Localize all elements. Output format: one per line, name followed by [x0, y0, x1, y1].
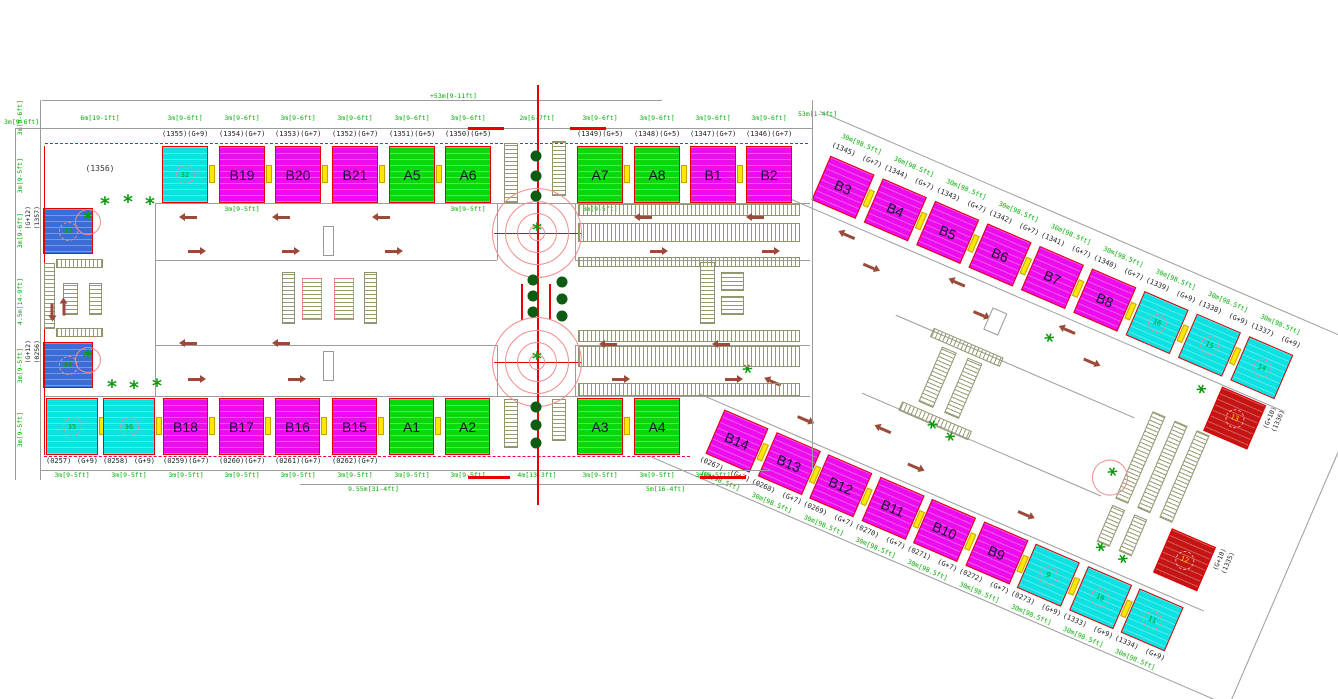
- block-label: B17: [229, 419, 254, 435]
- block-label: B21: [343, 167, 368, 183]
- block-label: A7: [591, 167, 608, 183]
- dim-label: 3m[9-5ft]: [16, 348, 24, 383]
- dim-label: 3m[9-5ft]: [394, 471, 429, 479]
- road-arrow-icon: [188, 250, 200, 253]
- floors-label: (G+7): [715, 130, 736, 138]
- floors-label: (G+12): [24, 206, 32, 229]
- plot-number: (0261): [275, 457, 300, 465]
- tree-icon: [531, 402, 542, 413]
- dim-label: 3m[9-5ft]: [582, 471, 617, 479]
- parking-hatch: [552, 141, 566, 196]
- plot-block-b7[interactable]: B7: [1021, 246, 1084, 309]
- parking-hatch: [334, 278, 354, 320]
- plot-label: (0262)(G+7): [332, 457, 377, 465]
- grid-line: [15, 128, 16, 480]
- road-arrow-icon: [378, 216, 390, 219]
- block-label: B19: [230, 167, 255, 183]
- road-arrow-icon: [1083, 358, 1095, 366]
- block-label: B2: [760, 167, 777, 183]
- road-arrow-icon: [752, 216, 764, 219]
- block-label: B20: [286, 167, 311, 183]
- unit-number: 10: [1088, 585, 1113, 610]
- parking-hatch: [89, 283, 102, 315]
- block-label: A1: [403, 419, 420, 435]
- tree-icon: *: [940, 430, 957, 451]
- dimension-bar: [570, 127, 606, 130]
- tree-icon: [528, 291, 539, 302]
- road-arrow-icon: [185, 216, 197, 219]
- tree-icon: *: [83, 348, 93, 367]
- floors-label: (G+7): [357, 457, 378, 465]
- unit-number: 16: [1145, 310, 1170, 335]
- plot-block-b4[interactable]: B4: [864, 178, 927, 241]
- plot-label: (1355)(G+9): [162, 130, 208, 138]
- unit-number: 12: [1172, 547, 1197, 572]
- parking-hatch: [578, 257, 800, 267]
- floors-label: (G+7): [188, 457, 209, 465]
- grid-line: [812, 100, 813, 470]
- plot-block-b3[interactable]: B3: [811, 156, 874, 219]
- parking-hatch: [552, 399, 566, 441]
- plot-number: (1350): [445, 130, 470, 138]
- tree-icon: *: [1091, 540, 1108, 561]
- road-arrow-icon: [953, 280, 965, 288]
- boundary-dashed: [45, 143, 808, 144]
- dim-label: 3m[9-5ft]: [450, 205, 485, 213]
- floors-label: (G+7): [244, 457, 265, 465]
- block-label: A5: [403, 167, 420, 183]
- parking-hatch: [721, 272, 744, 291]
- floors-label: (G+12): [24, 340, 32, 363]
- tree-icon: [557, 311, 568, 322]
- plot-block-a1[interactable]: A1: [389, 398, 434, 455]
- tree-icon: *: [532, 350, 542, 369]
- parking-hatch: [302, 278, 322, 320]
- tree-icon: *: [107, 378, 117, 397]
- yellow-connector: [435, 417, 441, 435]
- road-arrow-icon: [385, 250, 397, 253]
- plot-block-a4[interactable]: A4: [634, 398, 680, 455]
- road-arrow-icon: [612, 378, 624, 381]
- planter-box: [323, 351, 334, 381]
- grid-line: [40, 470, 770, 471]
- yellow-connector: [156, 417, 162, 435]
- road-arrow-icon: [278, 216, 290, 219]
- plot-block-b16[interactable]: B16: [275, 398, 320, 455]
- unit-number: 14: [1249, 355, 1274, 380]
- dimension-bar: [468, 127, 504, 130]
- block-label: A8: [648, 167, 665, 183]
- dim-label: 3m[9-6ft]: [337, 114, 372, 122]
- road-arrow-icon: [879, 427, 891, 435]
- floors-label: (G+7): [244, 130, 265, 138]
- parking-hatch: [721, 296, 744, 315]
- floors-label: (G+5): [414, 130, 435, 138]
- plot-block-b21[interactable]: B21: [332, 146, 378, 203]
- block-label: B15: [342, 419, 367, 435]
- block-label: B16: [285, 419, 310, 435]
- dim-label: 3m[9-6ft]: [582, 114, 617, 122]
- dim-label: 3m[9-6ft]: [167, 114, 202, 122]
- block-label: B4: [884, 199, 906, 220]
- dim-label: 3m[9-5ft]: [280, 471, 315, 479]
- plot-label: (0258)(G+9): [103, 457, 155, 465]
- plot-block-16[interactable]: 16: [1126, 291, 1189, 354]
- plot-block-b5[interactable]: B5: [916, 201, 979, 264]
- dim-total-top: +53m[9-11ft]: [430, 92, 477, 100]
- block-label: A4: [648, 419, 665, 435]
- road-arrow-icon: [640, 216, 652, 219]
- parking-hatch: [56, 328, 103, 337]
- road-arrow-icon: [282, 250, 294, 253]
- plot-number: (1354): [219, 130, 244, 138]
- median-strip: [521, 284, 523, 320]
- yellow-connector: [321, 417, 327, 435]
- block-label: A6: [459, 167, 476, 183]
- plot-number: (1352): [332, 130, 357, 138]
- tree-icon: *: [1113, 552, 1130, 573]
- yellow-connector: [209, 417, 215, 435]
- tree-icon: [528, 307, 539, 318]
- plot-number: (1347): [690, 130, 715, 138]
- road-arrow-icon: [1017, 510, 1029, 518]
- yellow-connector: [266, 165, 272, 183]
- road-arrow-icon: [762, 250, 774, 253]
- dim-label: 3m[9-6ft]: [450, 114, 485, 122]
- tree-icon: *: [129, 379, 139, 398]
- plot-block-b15[interactable]: B15: [332, 398, 377, 455]
- median-strip: [549, 284, 551, 320]
- floors-label: (G+9): [77, 457, 98, 465]
- dim-label: 3m[9-5ft]: [639, 471, 674, 479]
- grid-line: [300, 484, 760, 485]
- plot-block-a6[interactable]: A6: [445, 146, 491, 203]
- road-arrow-icon: [725, 378, 737, 381]
- plot-number: (0257): [46, 457, 71, 465]
- road-arrow-icon: [51, 304, 54, 316]
- tree-icon: *: [83, 210, 93, 229]
- unit-number: 36: [120, 417, 139, 436]
- block-label: B9: [985, 542, 1007, 563]
- plot-label: (1352)(G+7): [332, 130, 378, 138]
- boundary-dashed: [44, 456, 690, 457]
- road-arrow-icon: [650, 250, 662, 253]
- empty-plot-label: (1356): [60, 164, 140, 173]
- block-label: B1: [704, 167, 721, 183]
- parking-hatch: [700, 262, 715, 324]
- tree-icon: *: [145, 195, 155, 214]
- unit-number: 35: [63, 417, 82, 436]
- plot-block-b17[interactable]: B17: [219, 398, 264, 455]
- grid-line: [155, 260, 497, 261]
- plot-block-b1[interactable]: B1: [690, 146, 736, 203]
- yellow-connector: [378, 417, 384, 435]
- block-label: B3: [832, 177, 854, 198]
- road-arrow-icon: [63, 304, 66, 316]
- floors-label: (G+9): [134, 457, 155, 465]
- plot-label: (1347)(G+7): [690, 130, 736, 138]
- tree-icon: *: [1039, 331, 1056, 352]
- plot-block-b20[interactable]: B20: [275, 146, 321, 203]
- plot-label: (0257)(G+9): [46, 457, 98, 465]
- parking-hatch: [578, 383, 800, 396]
- plot-label: (1354)(G+7): [219, 130, 265, 138]
- plot-block-a7[interactable]: A7: [577, 146, 623, 203]
- dim-label: 6m[19-1ft]: [80, 114, 119, 122]
- yellow-connector: [209, 165, 215, 183]
- plot-block-b2[interactable]: B2: [746, 146, 792, 203]
- dim-label: 3m[9-5ft]: [16, 158, 24, 193]
- plot-block-35[interactable]: 35: [46, 398, 98, 455]
- unit-number: 32: [176, 165, 195, 184]
- plot-block-a3[interactable]: A3: [577, 398, 623, 455]
- block-label: A2: [459, 419, 476, 435]
- yellow-connector: [624, 165, 630, 183]
- plot-label: (1346)(G+7): [746, 130, 792, 138]
- road-arrow-icon: [718, 343, 730, 346]
- block-label: B8: [1094, 289, 1116, 310]
- road-arrow-icon: [185, 342, 197, 345]
- block-label: B13: [774, 451, 803, 476]
- dim-total-bottom: 9.55m[31-4ft]: [348, 485, 399, 493]
- floors-label: (G+5): [602, 130, 623, 138]
- plot-number: (0259): [163, 457, 188, 465]
- parking-hatch: [56, 259, 103, 268]
- dim-label: 3m[9-5ft]: [16, 412, 24, 447]
- road-arrow-icon: [288, 378, 300, 381]
- floors-label: (G+7): [300, 130, 321, 138]
- plot-number: (1349): [577, 130, 602, 138]
- dim-label: 3m[9-6ft]: [751, 114, 786, 122]
- dim-label: 3m[9-6ft]: [224, 114, 259, 122]
- plot-number: (1351): [389, 130, 414, 138]
- road-arrow-icon: [863, 263, 875, 271]
- road-arrow-icon: [843, 232, 855, 240]
- tree-icon: [531, 191, 542, 202]
- plot-block-b8[interactable]: B8: [1073, 269, 1136, 332]
- dim-label: 3m[9-5ft]: [111, 471, 146, 479]
- floors-label: (G+7): [300, 457, 321, 465]
- dim-label: 3m[9-6ft]: [394, 114, 429, 122]
- dim-label: 3m[9-6ft]: [16, 100, 24, 135]
- plot-block-36[interactable]: 36: [103, 398, 155, 455]
- grid-line: [15, 128, 812, 129]
- plot-block-b6[interactable]: B6: [969, 223, 1032, 286]
- dim-label: 3m[9-6ft]: [280, 114, 315, 122]
- plot-number: (0262): [332, 457, 357, 465]
- plot-label: (0259)(G+7): [163, 457, 208, 465]
- floors-label: (G+7): [357, 130, 378, 138]
- yellow-connector: [379, 165, 385, 183]
- block-label: B7: [1041, 267, 1063, 288]
- floors-label: (G+5): [470, 130, 491, 138]
- tree-icon: [528, 275, 539, 286]
- dim-label: 3m[9-6ft]: [639, 114, 674, 122]
- block-label: B18: [173, 419, 198, 435]
- parking-hatch: [364, 272, 377, 324]
- yellow-connector: [322, 165, 328, 183]
- road-arrow-icon: [907, 463, 919, 471]
- block-label: B5: [937, 222, 959, 243]
- road-arrow-icon: [605, 343, 617, 346]
- parking-hatch: [504, 399, 518, 448]
- parking-hatch: [578, 346, 800, 367]
- block-label: B12: [826, 473, 855, 498]
- plot-block-15[interactable]: 15: [1178, 314, 1241, 377]
- unit-number: 9: [1036, 563, 1061, 588]
- tree-icon: *: [100, 195, 110, 214]
- plot-block-a5[interactable]: A5: [389, 146, 435, 203]
- parking-hatch: [578, 223, 800, 242]
- tree-icon: [531, 438, 542, 449]
- dim-label: 3m[9-5ft]: [54, 471, 89, 479]
- tree-icon: [531, 171, 542, 182]
- plot-number: (1353): [275, 130, 300, 138]
- block-label: B11: [879, 496, 907, 520]
- floors-label: (G+5): [659, 130, 680, 138]
- tree-icon: *: [152, 377, 162, 396]
- grid-line: [40, 100, 41, 480]
- dim-label: 3m[9-5ft]: [224, 205, 259, 213]
- dimension-bar: [468, 476, 510, 479]
- yellow-connector: [436, 165, 442, 183]
- tree-icon: *: [123, 193, 133, 212]
- dim-label: 3m[9-5ft]: [168, 471, 203, 479]
- plot-block-14[interactable]: 14: [1230, 336, 1293, 399]
- block-label: B6: [989, 244, 1011, 265]
- dimension-bar: [700, 476, 746, 479]
- yellow-connector: [624, 417, 630, 435]
- road-arrow-icon: [188, 378, 200, 381]
- road-arrow-icon: [797, 415, 809, 423]
- tree-icon: [557, 294, 568, 305]
- plot-number: (0260): [219, 457, 244, 465]
- plot-block-32[interactable]: 32: [162, 146, 208, 203]
- site-plan: +53m[9-11ft] 53m[1-4ft] 9.55m[31-4ft] 5m…: [0, 0, 1338, 699]
- floors-label: (G+9): [187, 130, 208, 138]
- unit-number: 15: [1197, 333, 1222, 358]
- grid-line: [155, 345, 497, 346]
- tree-icon: *: [532, 221, 542, 240]
- parking-hatch: [282, 272, 295, 324]
- yellow-connector: [737, 165, 743, 183]
- yellow-connector: [681, 165, 687, 183]
- tree-icon: *: [1191, 382, 1208, 403]
- plot-label: (1348)(G+5): [634, 130, 680, 138]
- floors-label: (G+9): [1227, 312, 1250, 328]
- plot-number: (1348): [634, 130, 659, 138]
- plot-label: (1349)(G+5): [577, 130, 623, 138]
- plot-number: (1355): [162, 130, 187, 138]
- plot-label: (0261)(G+7): [275, 457, 320, 465]
- tree-icon: [557, 277, 568, 288]
- plot-label: (0260)(G+7): [219, 457, 264, 465]
- grid-line: [42, 100, 662, 101]
- dim-label: 3m[9-6ft]: [16, 213, 24, 248]
- tree-icon: [531, 420, 542, 431]
- road-arrow-icon: [1063, 327, 1075, 335]
- dim-label: 3m[9-5ft]: [337, 471, 372, 479]
- parking-hatch: [578, 204, 800, 216]
- plot-block-13[interactable]: 13: [1203, 387, 1266, 450]
- floors-label: (G+7): [771, 130, 792, 138]
- unit-number: 11: [1140, 607, 1165, 632]
- parking-hatch: [578, 330, 800, 342]
- tree-icon: [531, 151, 542, 162]
- plot-block-a8[interactable]: A8: [634, 146, 680, 203]
- dim-total-bottom-right: 5m[16-4ft]: [646, 485, 685, 493]
- unit-number: 13: [1222, 406, 1247, 431]
- plot-label: (1351)(G+5): [389, 130, 435, 138]
- road-arrow-icon: [973, 310, 985, 318]
- plot-block-b19[interactable]: B19: [219, 146, 265, 203]
- dim-label: 4.5m[14-9ft]: [16, 278, 24, 325]
- plot-block-b18[interactable]: B18: [163, 398, 208, 455]
- planter-box: [323, 226, 334, 256]
- dim-label: 3m[9-6ft]: [695, 114, 730, 122]
- plot-block-a2[interactable]: A2: [445, 398, 490, 455]
- grid-line: [155, 203, 156, 396]
- plot-label: (1353)(G+7): [275, 130, 321, 138]
- plot-label: (1350)(G+5): [445, 130, 491, 138]
- block-label: A3: [591, 419, 608, 435]
- block-label: B10: [930, 518, 959, 543]
- yellow-connector: [265, 417, 271, 435]
- plot-number: (0258): [103, 457, 128, 465]
- plot-number: (1346): [746, 130, 771, 138]
- block-label: B14: [722, 429, 751, 454]
- road-arrow-icon: [278, 342, 290, 345]
- plot-block-12[interactable]: 12: [1153, 528, 1216, 591]
- dim-label: 3m[9-5ft]: [224, 471, 259, 479]
